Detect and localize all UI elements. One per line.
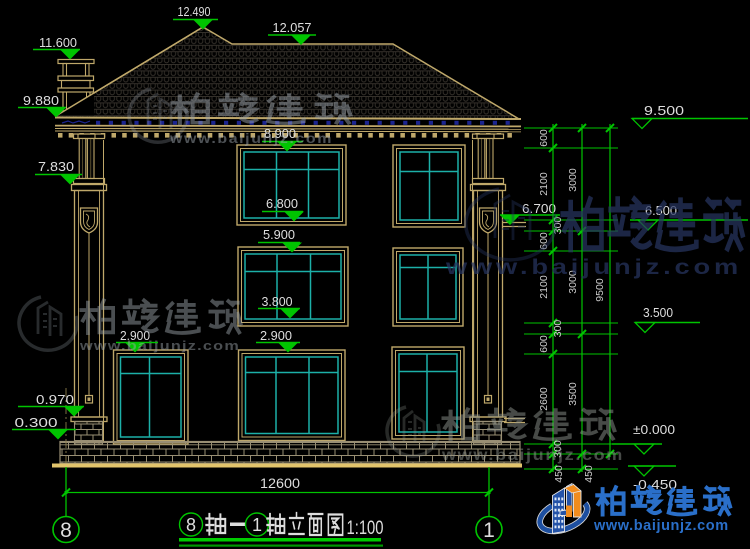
- svg-text:0.970: 0.970: [36, 393, 74, 407]
- svg-text:9.500: 9.500: [644, 104, 684, 118]
- svg-text:8: 8: [60, 519, 72, 542]
- svg-text:12600: 12600: [260, 476, 300, 491]
- svg-text:3500: 3500: [567, 382, 579, 406]
- svg-text:2.900: 2.900: [260, 329, 292, 343]
- svg-text:www.baijunjz.com: www.baijunjz.com: [441, 447, 624, 464]
- svg-text:9500: 9500: [594, 278, 606, 302]
- svg-text:450: 450: [583, 465, 595, 483]
- svg-text:1:100: 1:100: [347, 518, 384, 539]
- svg-text:1: 1: [252, 515, 262, 535]
- svg-text:600: 600: [538, 129, 550, 147]
- svg-text:2600: 2600: [538, 387, 550, 411]
- svg-text:7.830: 7.830: [38, 160, 74, 174]
- svg-text:9.880: 9.880: [23, 94, 59, 108]
- svg-text:1: 1: [483, 519, 495, 542]
- svg-text:8: 8: [186, 515, 196, 535]
- svg-text:12.490: 12.490: [178, 5, 211, 19]
- svg-text:2100: 2100: [538, 172, 550, 196]
- svg-text:12.057: 12.057: [273, 21, 312, 35]
- svg-text:www.baijunjz.com: www.baijunjz.com: [593, 518, 729, 534]
- svg-text:6.800: 6.800: [266, 197, 298, 211]
- svg-text:www.baijunjz.com: www.baijunjz.com: [169, 130, 333, 146]
- svg-text:11.600: 11.600: [39, 36, 77, 50]
- svg-text:450: 450: [553, 465, 565, 483]
- svg-text:600: 600: [538, 335, 550, 353]
- svg-text:3000: 3000: [567, 168, 579, 192]
- svg-text:3.500: 3.500: [643, 306, 673, 320]
- svg-text:3.800: 3.800: [262, 295, 293, 309]
- svg-text:±0.000: ±0.000: [633, 423, 675, 437]
- svg-text:300: 300: [552, 320, 564, 338]
- svg-text:www.baijunjz.com: www.baijunjz.com: [445, 255, 742, 279]
- svg-text:5.900: 5.900: [263, 228, 295, 242]
- svg-text:0.300: 0.300: [15, 416, 58, 430]
- svg-text:www.baijunjz.com: www.baijunjz.com: [79, 338, 240, 353]
